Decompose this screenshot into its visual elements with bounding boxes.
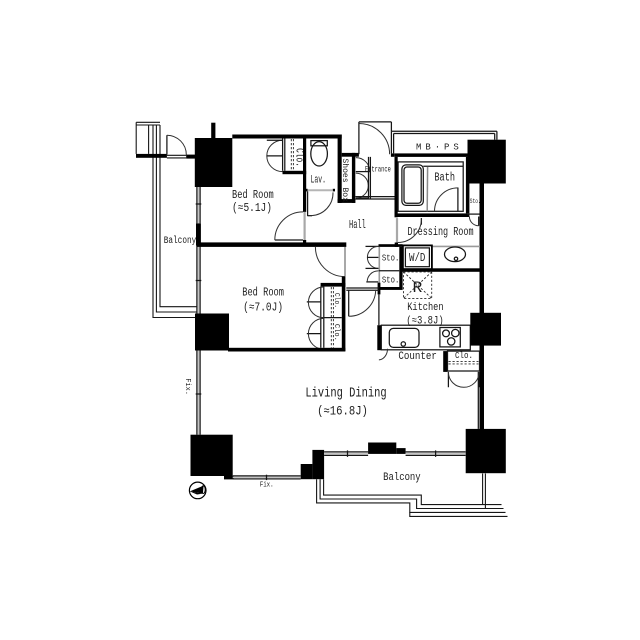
- svg-text:R: R: [413, 279, 423, 297]
- svg-text:Sto.: Sto.: [382, 254, 400, 264]
- svg-text:(≈7.0J): (≈7.0J): [243, 301, 283, 315]
- svg-text:Clo.: Clo.: [332, 324, 340, 341]
- svg-text:Clo.: Clo.: [293, 148, 305, 167]
- svg-text:Clo.: Clo.: [332, 293, 340, 308]
- svg-text:Bed Room: Bed Room: [242, 285, 284, 299]
- svg-text:(≈5.1J): (≈5.1J): [232, 201, 272, 215]
- svg-text:(≈16.8J): (≈16.8J): [317, 405, 368, 419]
- svg-text:W/D: W/D: [409, 251, 425, 265]
- svg-text:Bath: Bath: [434, 172, 455, 185]
- svg-text:Lav.: Lav.: [310, 174, 326, 186]
- svg-text:Counter: Counter: [398, 351, 437, 363]
- svg-text:Sto.: Sto.: [470, 198, 481, 205]
- svg-text:Fix.: Fix.: [260, 481, 274, 489]
- svg-text:Fix.: Fix.: [183, 378, 191, 395]
- svg-text:Hall: Hall: [349, 218, 366, 232]
- svg-text:Sto.: Sto.: [382, 276, 400, 286]
- svg-text:Kitchen: Kitchen: [407, 302, 443, 314]
- svg-text:Entrance: Entrance: [365, 164, 391, 174]
- svg-text:Shoes Box: Shoes Box: [340, 158, 349, 202]
- svg-text:Balcony: Balcony: [164, 235, 197, 247]
- svg-text:Balcony: Balcony: [383, 472, 421, 484]
- svg-text:Clo.: Clo.: [455, 351, 473, 361]
- svg-text:Living Dining: Living Dining: [305, 385, 386, 401]
